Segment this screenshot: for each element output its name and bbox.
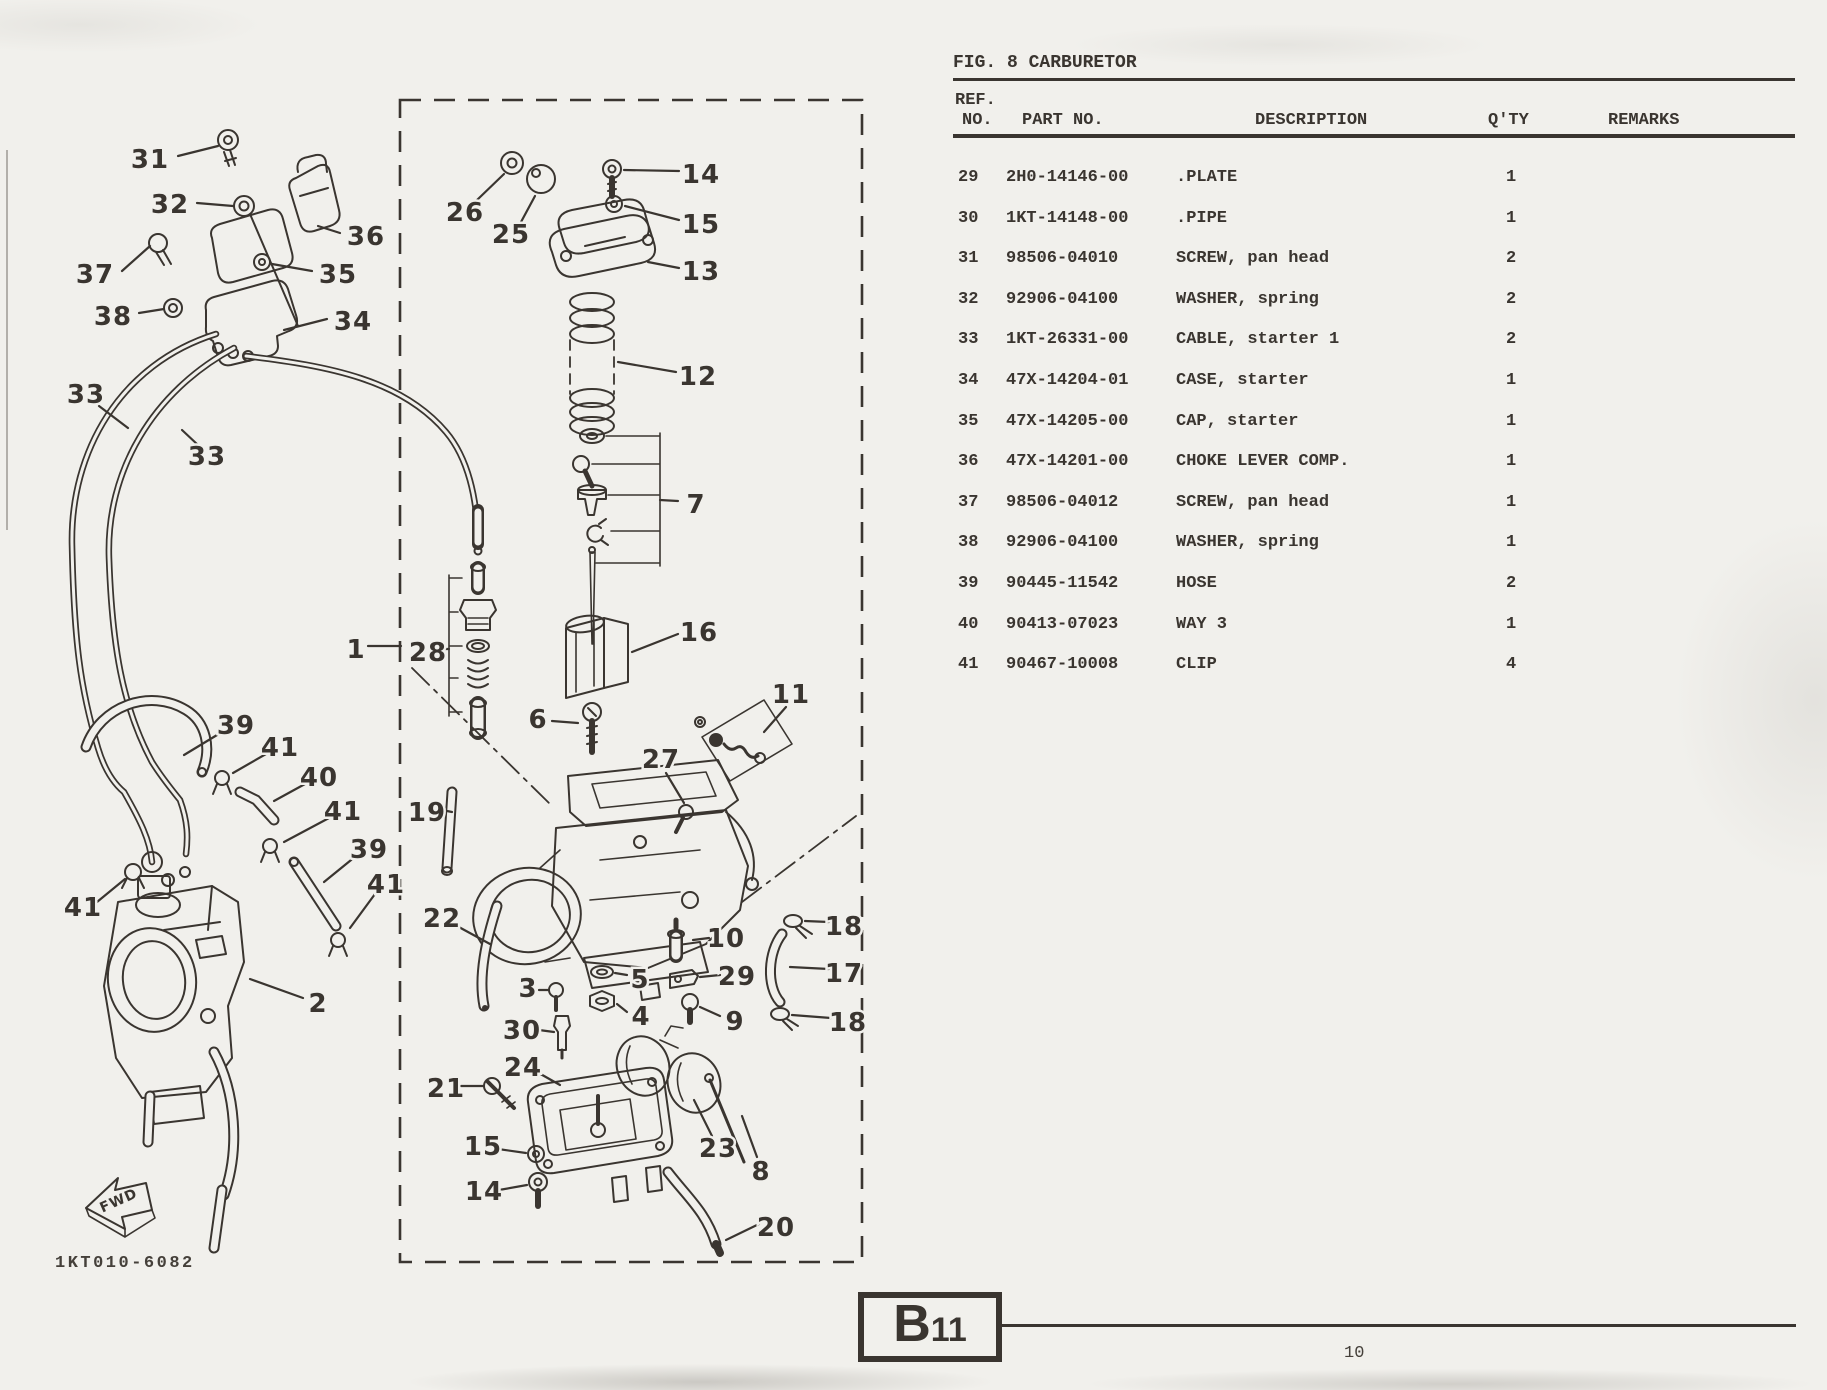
page-number: 10 <box>1344 1344 1364 1363</box>
callout-leader-20 <box>726 1224 759 1240</box>
cell-part_no: 2H0-14146-00 <box>1006 168 1128 187</box>
callout-leader-5 <box>615 973 627 975</box>
cell-part_no: 98506-04010 <box>1006 249 1118 268</box>
cell-description: CAP, starter <box>1176 412 1298 431</box>
cell-description: CLIP <box>1176 655 1217 674</box>
callout-18: 18 <box>825 912 863 942</box>
callout-19: 19 <box>408 798 446 828</box>
cell-description: HOSE <box>1176 574 1217 593</box>
callout-17: 17 <box>825 959 863 989</box>
cell-description: .PIPE <box>1176 209 1227 228</box>
cell-description: WASHER, spring <box>1176 290 1319 309</box>
cell-qty: 2 <box>1506 574 1516 593</box>
cell-qty: 4 <box>1506 655 1516 674</box>
footer-rule <box>996 1324 1796 1327</box>
cell-ref: 29 <box>958 168 978 187</box>
pilot-screw <box>676 805 693 832</box>
callout-leader-32 <box>197 203 233 206</box>
cell-ref: 33 <box>958 330 978 349</box>
callout-24: 24 <box>504 1053 542 1083</box>
figure-title: FIG. 8 CARBURETOR <box>953 53 1137 73</box>
table-row: 4090413-07023WAY 31 <box>0 615 1827 637</box>
callout-27: 27 <box>642 745 680 775</box>
callout-4: 4 <box>631 1002 650 1032</box>
callout-leader-17 <box>790 967 829 969</box>
callout-5: 5 <box>630 965 649 995</box>
header-part-no: PART NO. <box>1022 111 1104 130</box>
cell-part_no: 47X-14205-00 <box>1006 412 1128 431</box>
cell-ref: 38 <box>958 533 978 552</box>
table-row: 3447X-14204-01CASE, starter1 <box>0 371 1827 393</box>
cell-part_no: 1KT-14148-00 <box>1006 209 1128 228</box>
callout-leader-30 <box>539 1030 554 1032</box>
carburetor-drain-hoses <box>148 1052 234 1248</box>
cell-description: CABLE, starter 1 <box>1176 330 1339 349</box>
cell-ref: 39 <box>958 574 978 593</box>
callout-2: 2 <box>308 989 327 1019</box>
cell-description: SCREW, pan head <box>1176 249 1329 268</box>
cell-part_no: 90445-11542 <box>1006 574 1118 593</box>
callout-39: 39 <box>350 835 388 865</box>
callout-41: 41 <box>261 733 299 763</box>
callout-40: 40 <box>300 763 338 793</box>
callout-leader-6 <box>552 721 578 723</box>
table-row: 4190467-10008CLIP4 <box>0 655 1827 677</box>
callout-leader-2 <box>250 979 303 998</box>
callout-41: 41 <box>64 893 102 923</box>
table-row: 3647X-14201-00CHOKE LEVER COMP.1 <box>0 452 1827 474</box>
cell-qty: 2 <box>1506 249 1516 268</box>
callout-39: 39 <box>217 711 255 741</box>
cell-part_no: 47X-14204-01 <box>1006 371 1128 390</box>
table-row: 3198506-04010SCREW, pan head2 <box>0 249 1827 271</box>
callout-leader-8 <box>742 1116 757 1157</box>
callout-3: 3 <box>518 974 537 1004</box>
cell-description: WASHER, spring <box>1176 533 1319 552</box>
cell-part_no: 47X-14201-00 <box>1006 452 1128 471</box>
table-header-rule <box>953 134 1795 138</box>
cell-ref: 30 <box>958 209 978 228</box>
cell-qty: 1 <box>1506 615 1516 634</box>
table-row: 3798506-04012SCREW, pan head1 <box>0 493 1827 515</box>
callout-9: 9 <box>725 1007 744 1037</box>
header-ref-line2: NO. <box>962 111 993 130</box>
cell-part_no: 92906-04100 <box>1006 290 1118 309</box>
callout-leader-41 <box>284 818 329 842</box>
table-row: 3892906-04100WASHER, spring1 <box>0 533 1827 555</box>
callout-6: 6 <box>528 705 547 735</box>
header-ref-line1: REF. <box>955 91 996 110</box>
callout-leader-4 <box>617 1004 627 1012</box>
cell-part_no: 90467-10008 <box>1006 655 1118 674</box>
callout-leader-34 <box>284 319 327 330</box>
cell-ref: 34 <box>958 371 978 390</box>
cell-ref: 36 <box>958 452 978 471</box>
drawing-number: 1KT010-6082 <box>55 1254 195 1273</box>
cell-qty: 1 <box>1506 209 1516 228</box>
callout-leader-23 <box>694 1100 712 1136</box>
cell-ref: 35 <box>958 412 978 431</box>
cell-description: SCREW, pan head <box>1176 493 1329 512</box>
table-top-rule <box>953 78 1795 81</box>
callout-15: 15 <box>464 1132 502 1162</box>
callout-21: 21 <box>427 1074 465 1104</box>
callout-41: 41 <box>324 797 362 827</box>
catalog-page: 3132363735383433332625141513127161286112… <box>0 0 1827 1390</box>
parts-kit-11 <box>695 700 792 781</box>
cell-part_no: 92906-04100 <box>1006 533 1118 552</box>
callout-leader-14 <box>499 1185 527 1190</box>
callout-22: 22 <box>423 904 461 934</box>
callout-leader-15 <box>498 1149 526 1153</box>
cell-qty: 1 <box>1506 371 1516 390</box>
table-row: 331KT-26331-00CABLE, starter 12 <box>0 330 1827 352</box>
cell-description: CHOKE LEVER COMP. <box>1176 452 1349 471</box>
callout-30: 30 <box>503 1016 541 1046</box>
cell-ref: 32 <box>958 290 978 309</box>
callout-29: 29 <box>718 962 756 992</box>
callout-10: 10 <box>707 924 745 954</box>
table-row: 3547X-14205-00CAP, starter1 <box>0 412 1827 434</box>
callout-14: 14 <box>465 1177 503 1207</box>
cell-part_no: 1KT-26331-00 <box>1006 330 1128 349</box>
section-badge: B11 <box>858 1292 1002 1362</box>
callout-11: 11 <box>772 680 810 710</box>
table-row: 301KT-14148-00.PIPE1 <box>0 209 1827 231</box>
cell-qty: 1 <box>1506 412 1516 431</box>
cell-description: CASE, starter <box>1176 371 1309 390</box>
cell-description: WAY 3 <box>1176 615 1227 634</box>
callout-41: 41 <box>367 870 405 900</box>
cell-ref: 31 <box>958 249 978 268</box>
callout-8: 8 <box>751 1157 770 1187</box>
cell-part_no: 90413-07023 <box>1006 615 1118 634</box>
callout-leader-9 <box>700 1007 720 1016</box>
cell-ref: 41 <box>958 655 978 674</box>
cell-qty: 2 <box>1506 330 1516 349</box>
table-row: 3292906-04100WASHER, spring2 <box>0 290 1827 312</box>
callout-20: 20 <box>757 1213 795 1243</box>
cell-qty: 2 <box>1506 290 1516 309</box>
cell-qty: 1 <box>1506 533 1516 552</box>
cell-qty: 1 <box>1506 168 1516 187</box>
cell-description: .PLATE <box>1176 168 1237 187</box>
cell-part_no: 98506-04012 <box>1006 493 1118 512</box>
section-badge-label: B11 <box>893 1296 967 1358</box>
callout-leader-27 <box>666 773 684 803</box>
cell-ref: 40 <box>958 615 978 634</box>
callout-23: 23 <box>699 1134 737 1164</box>
header-remarks: REMARKS <box>1608 111 1679 130</box>
callout-leader-18 <box>792 1015 831 1018</box>
table-row: 292H0-14146-00.PLATE1 <box>0 168 1827 190</box>
callout-leader-16 <box>632 634 678 652</box>
callout-18: 18 <box>829 1008 867 1038</box>
bowl-drain-hose <box>668 1172 720 1253</box>
header-description: DESCRIPTION <box>1255 111 1367 130</box>
callout-leader-31 <box>178 146 218 156</box>
header-qty: Q'TY <box>1488 111 1529 130</box>
vent-hoses <box>442 792 497 1011</box>
overflow-hoses <box>770 915 812 1030</box>
stop-screw <box>583 703 601 752</box>
cell-ref: 37 <box>958 493 978 512</box>
cell-qty: 1 <box>1506 452 1516 471</box>
table-row: 3990445-11542HOSE2 <box>0 574 1827 596</box>
cell-qty: 1 <box>1506 493 1516 512</box>
